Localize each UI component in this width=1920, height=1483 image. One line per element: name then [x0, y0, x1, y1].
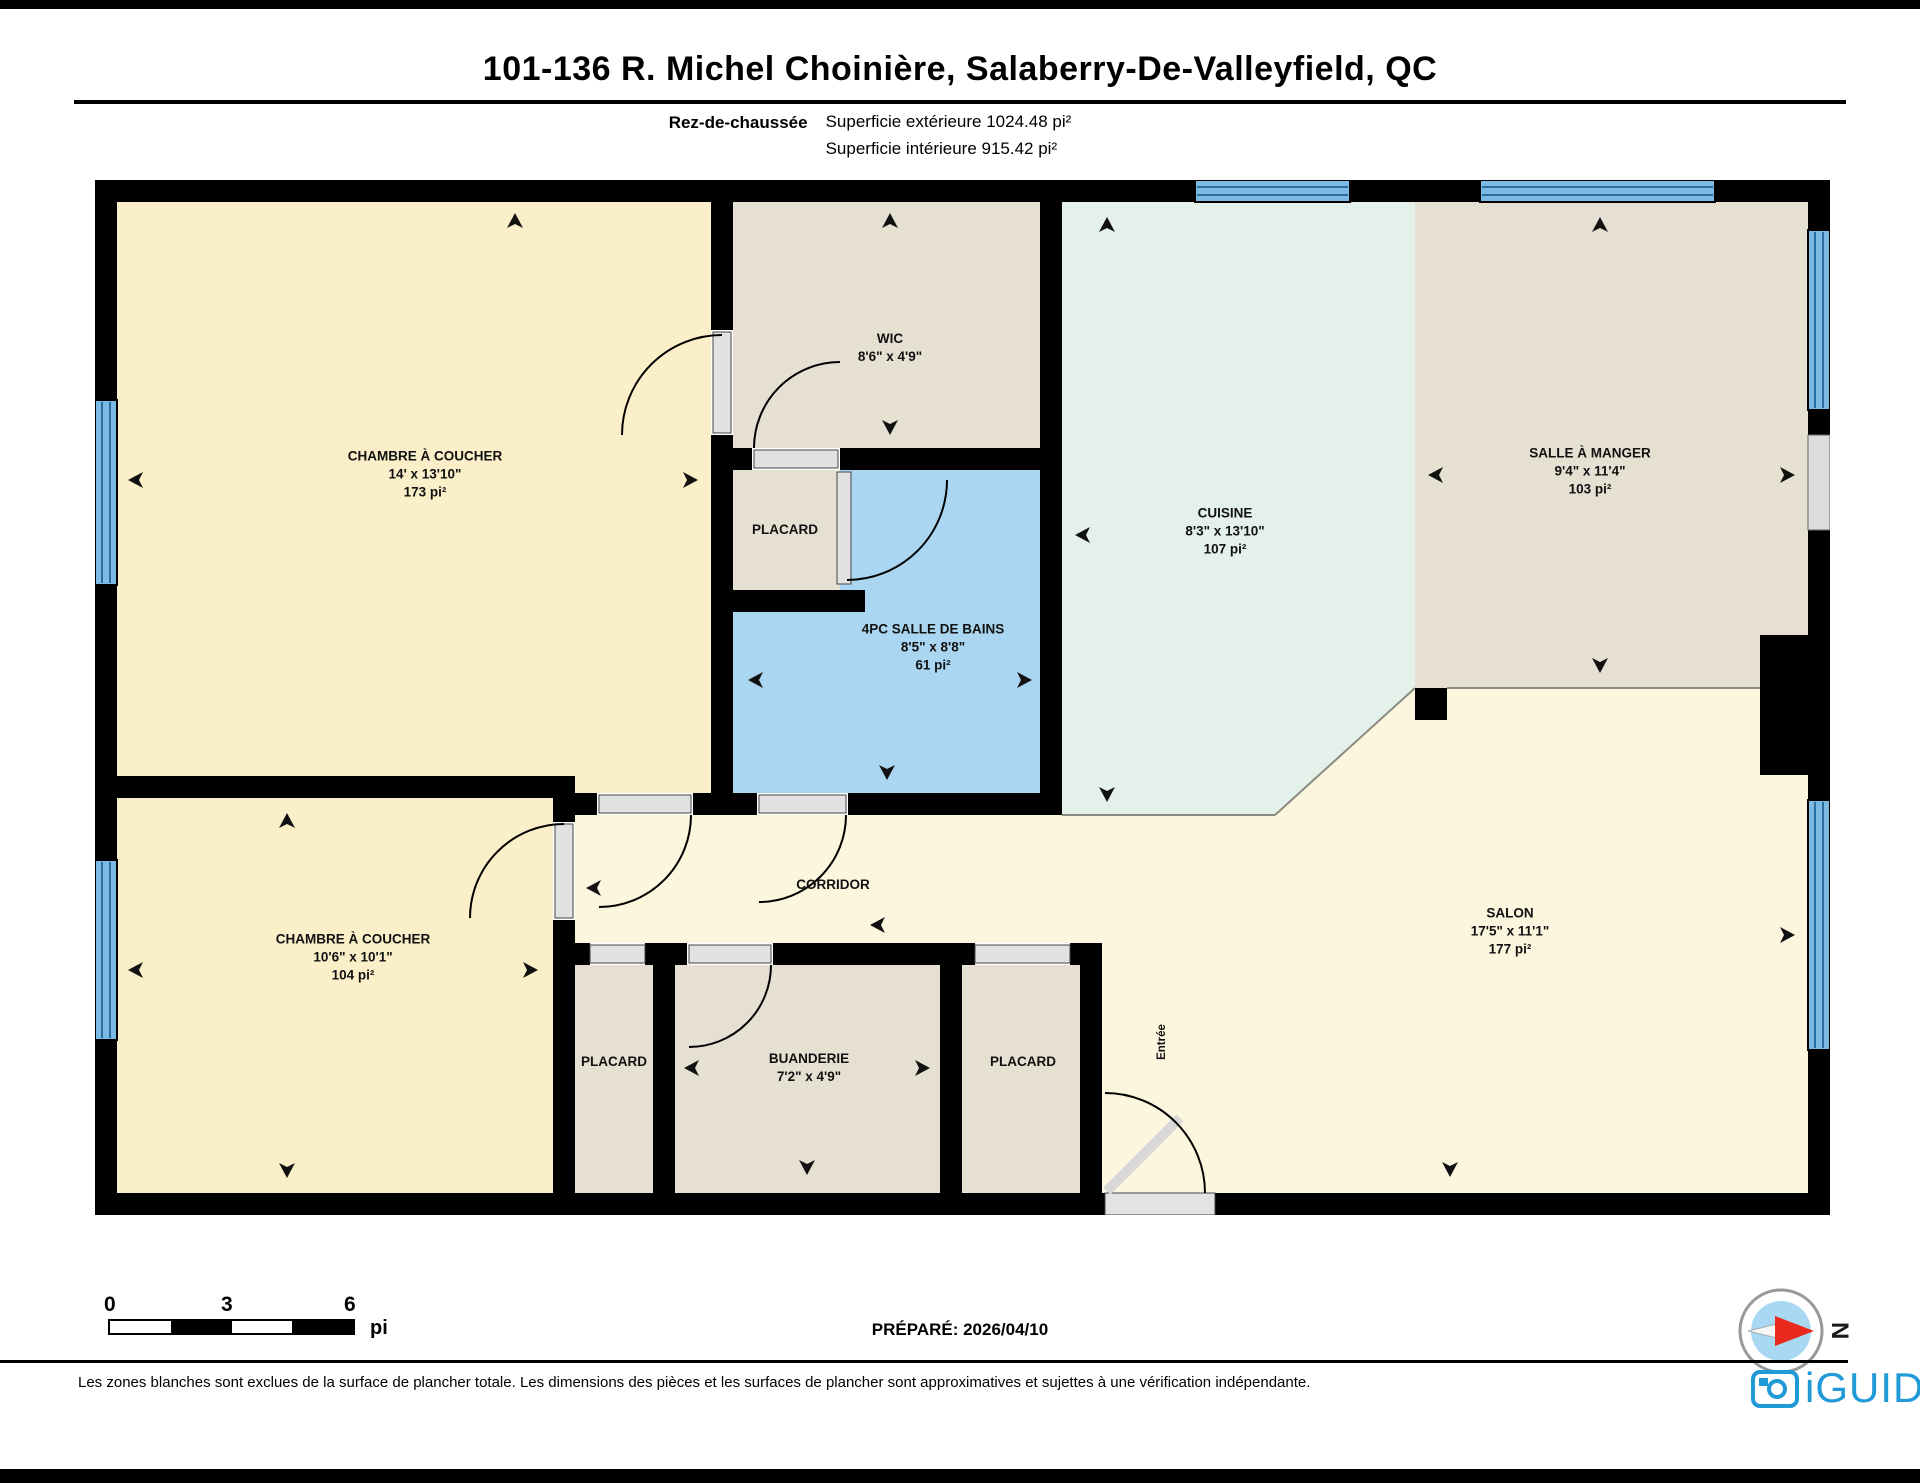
prepared-date: PRÉPARÉ: 2026/04/10: [0, 1320, 1920, 1340]
footer-divider: [0, 1360, 1848, 1363]
iguide-logo: iGUIDE: [1750, 1364, 1920, 1412]
room-label-corridor: CORRIDOR: [796, 876, 870, 894]
title-divider: [74, 100, 1846, 104]
room-label-cuisine: CUISINE8'3" x 13'10"107 pi²: [1185, 505, 1264, 560]
disclaimer-text: Les zones blanches sont exclues de la su…: [78, 1374, 1310, 1391]
iguide-camera-icon: [1750, 1366, 1800, 1410]
room-label-salon: SALON17'5" x 11'1"177 pi²: [1471, 905, 1550, 960]
patio-door-opening: [1808, 435, 1830, 530]
exterior-area: Superficie extérieure 1024.48 pi²: [826, 112, 1072, 132]
floor-summary: Rez-de-chaussée Superficie extérieure 10…: [0, 112, 1830, 159]
room-label-chambre-2: CHAMBRE À COUCHER10'6" x 10'1"104 pi²: [276, 931, 431, 986]
room-label-salle-de-bains: 4PC SALLE DE BAINS8'5" x 8'8"61 pi²: [862, 621, 1005, 676]
room-label-chambre-1: CHAMBRE À COUCHER14' x 13'10"173 pi²: [348, 448, 503, 503]
scale-tick-6: 6: [344, 1293, 356, 1317]
bottom-border-bar: [0, 1469, 1920, 1483]
top-border-bar: [0, 0, 1920, 9]
scale-tick-0: 0: [104, 1293, 116, 1317]
room-label-placard-2: PLACARD: [581, 1053, 647, 1071]
room-label-entree: Entrée: [1155, 1024, 1171, 1060]
compass-north-label: N: [1826, 1322, 1853, 1339]
interior-area: Superficie intérieure 915.42 pi²: [826, 139, 1072, 159]
room-label-placard-3: PLACARD: [990, 1053, 1056, 1071]
floorplan-canvas: [95, 180, 1830, 1215]
iguide-wordmark: iGUIDE: [1805, 1364, 1920, 1412]
room-label-buanderie: BUANDERIE7'2" x 4'9": [769, 1050, 849, 1086]
floorplan-page: 101-136 R. Michel Choinière, Salaberry-D…: [0, 0, 1920, 1483]
scale-tick-3: 3: [221, 1293, 233, 1317]
room-label-salle-a-manger: SALLE À MANGER9'4" x 11'4"103 pi²: [1529, 445, 1651, 500]
floor-label: Rez-de-chaussée: [669, 112, 808, 159]
page-title: 101-136 R. Michel Choinière, Salaberry-D…: [0, 50, 1920, 89]
floorplan: CHAMBRE À COUCHER14' x 13'10"173 pi² WIC…: [95, 180, 1830, 1215]
room-fills: [117, 202, 1808, 1193]
room-label-wic: WIC8'6" x 4'9": [858, 330, 922, 366]
room-label-placard-1: PLACARD: [752, 521, 818, 539]
